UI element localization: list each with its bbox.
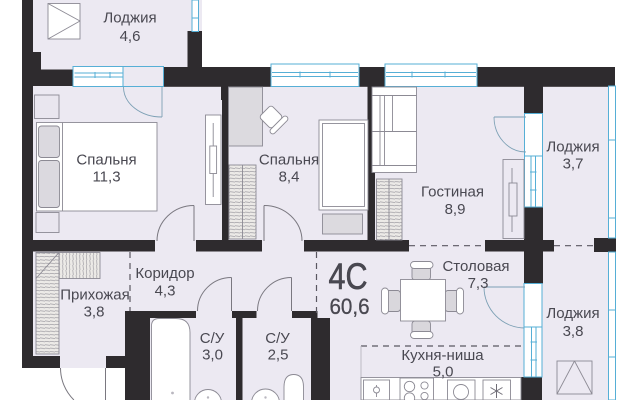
svg-text:Спальня: Спальня: [76, 152, 136, 169]
svg-text:2,5: 2,5: [268, 347, 289, 364]
svg-text:Лоджия: Лоджия: [546, 305, 599, 322]
svg-text:Столовая: Столовая: [442, 258, 509, 275]
svg-text:3,8: 3,8: [563, 323, 584, 340]
svg-text:Гостиная: Гостиная: [421, 184, 484, 201]
svg-text:Спальня: Спальня: [259, 152, 319, 169]
svg-text:Лоджия: Лоджия: [546, 139, 599, 156]
svg-text:3,8: 3,8: [84, 304, 105, 321]
svg-text:С/У: С/У: [265, 330, 290, 347]
svg-text:11,3: 11,3: [92, 169, 120, 186]
svg-text:8,4: 8,4: [279, 169, 300, 186]
svg-text:3,0: 3,0: [202, 347, 223, 364]
svg-text:8,9: 8,9: [445, 201, 466, 218]
svg-text:Коридор: Коридор: [135, 265, 194, 282]
svg-text:5,0: 5,0: [433, 364, 454, 381]
svg-text:Кухня-ниша: Кухня-ниша: [401, 347, 484, 364]
svg-text:Лоджия: Лоджия: [103, 10, 156, 27]
svg-text:4,6: 4,6: [120, 28, 141, 45]
svg-text:4,3: 4,3: [155, 283, 176, 300]
svg-text:4С: 4С: [329, 256, 368, 297]
svg-text:Прихожая: Прихожая: [60, 287, 130, 304]
svg-text:60,6: 60,6: [330, 294, 370, 319]
svg-text:3,7: 3,7: [563, 156, 584, 173]
svg-text:7,3: 7,3: [468, 275, 489, 292]
svg-text:С/У: С/У: [200, 330, 225, 347]
